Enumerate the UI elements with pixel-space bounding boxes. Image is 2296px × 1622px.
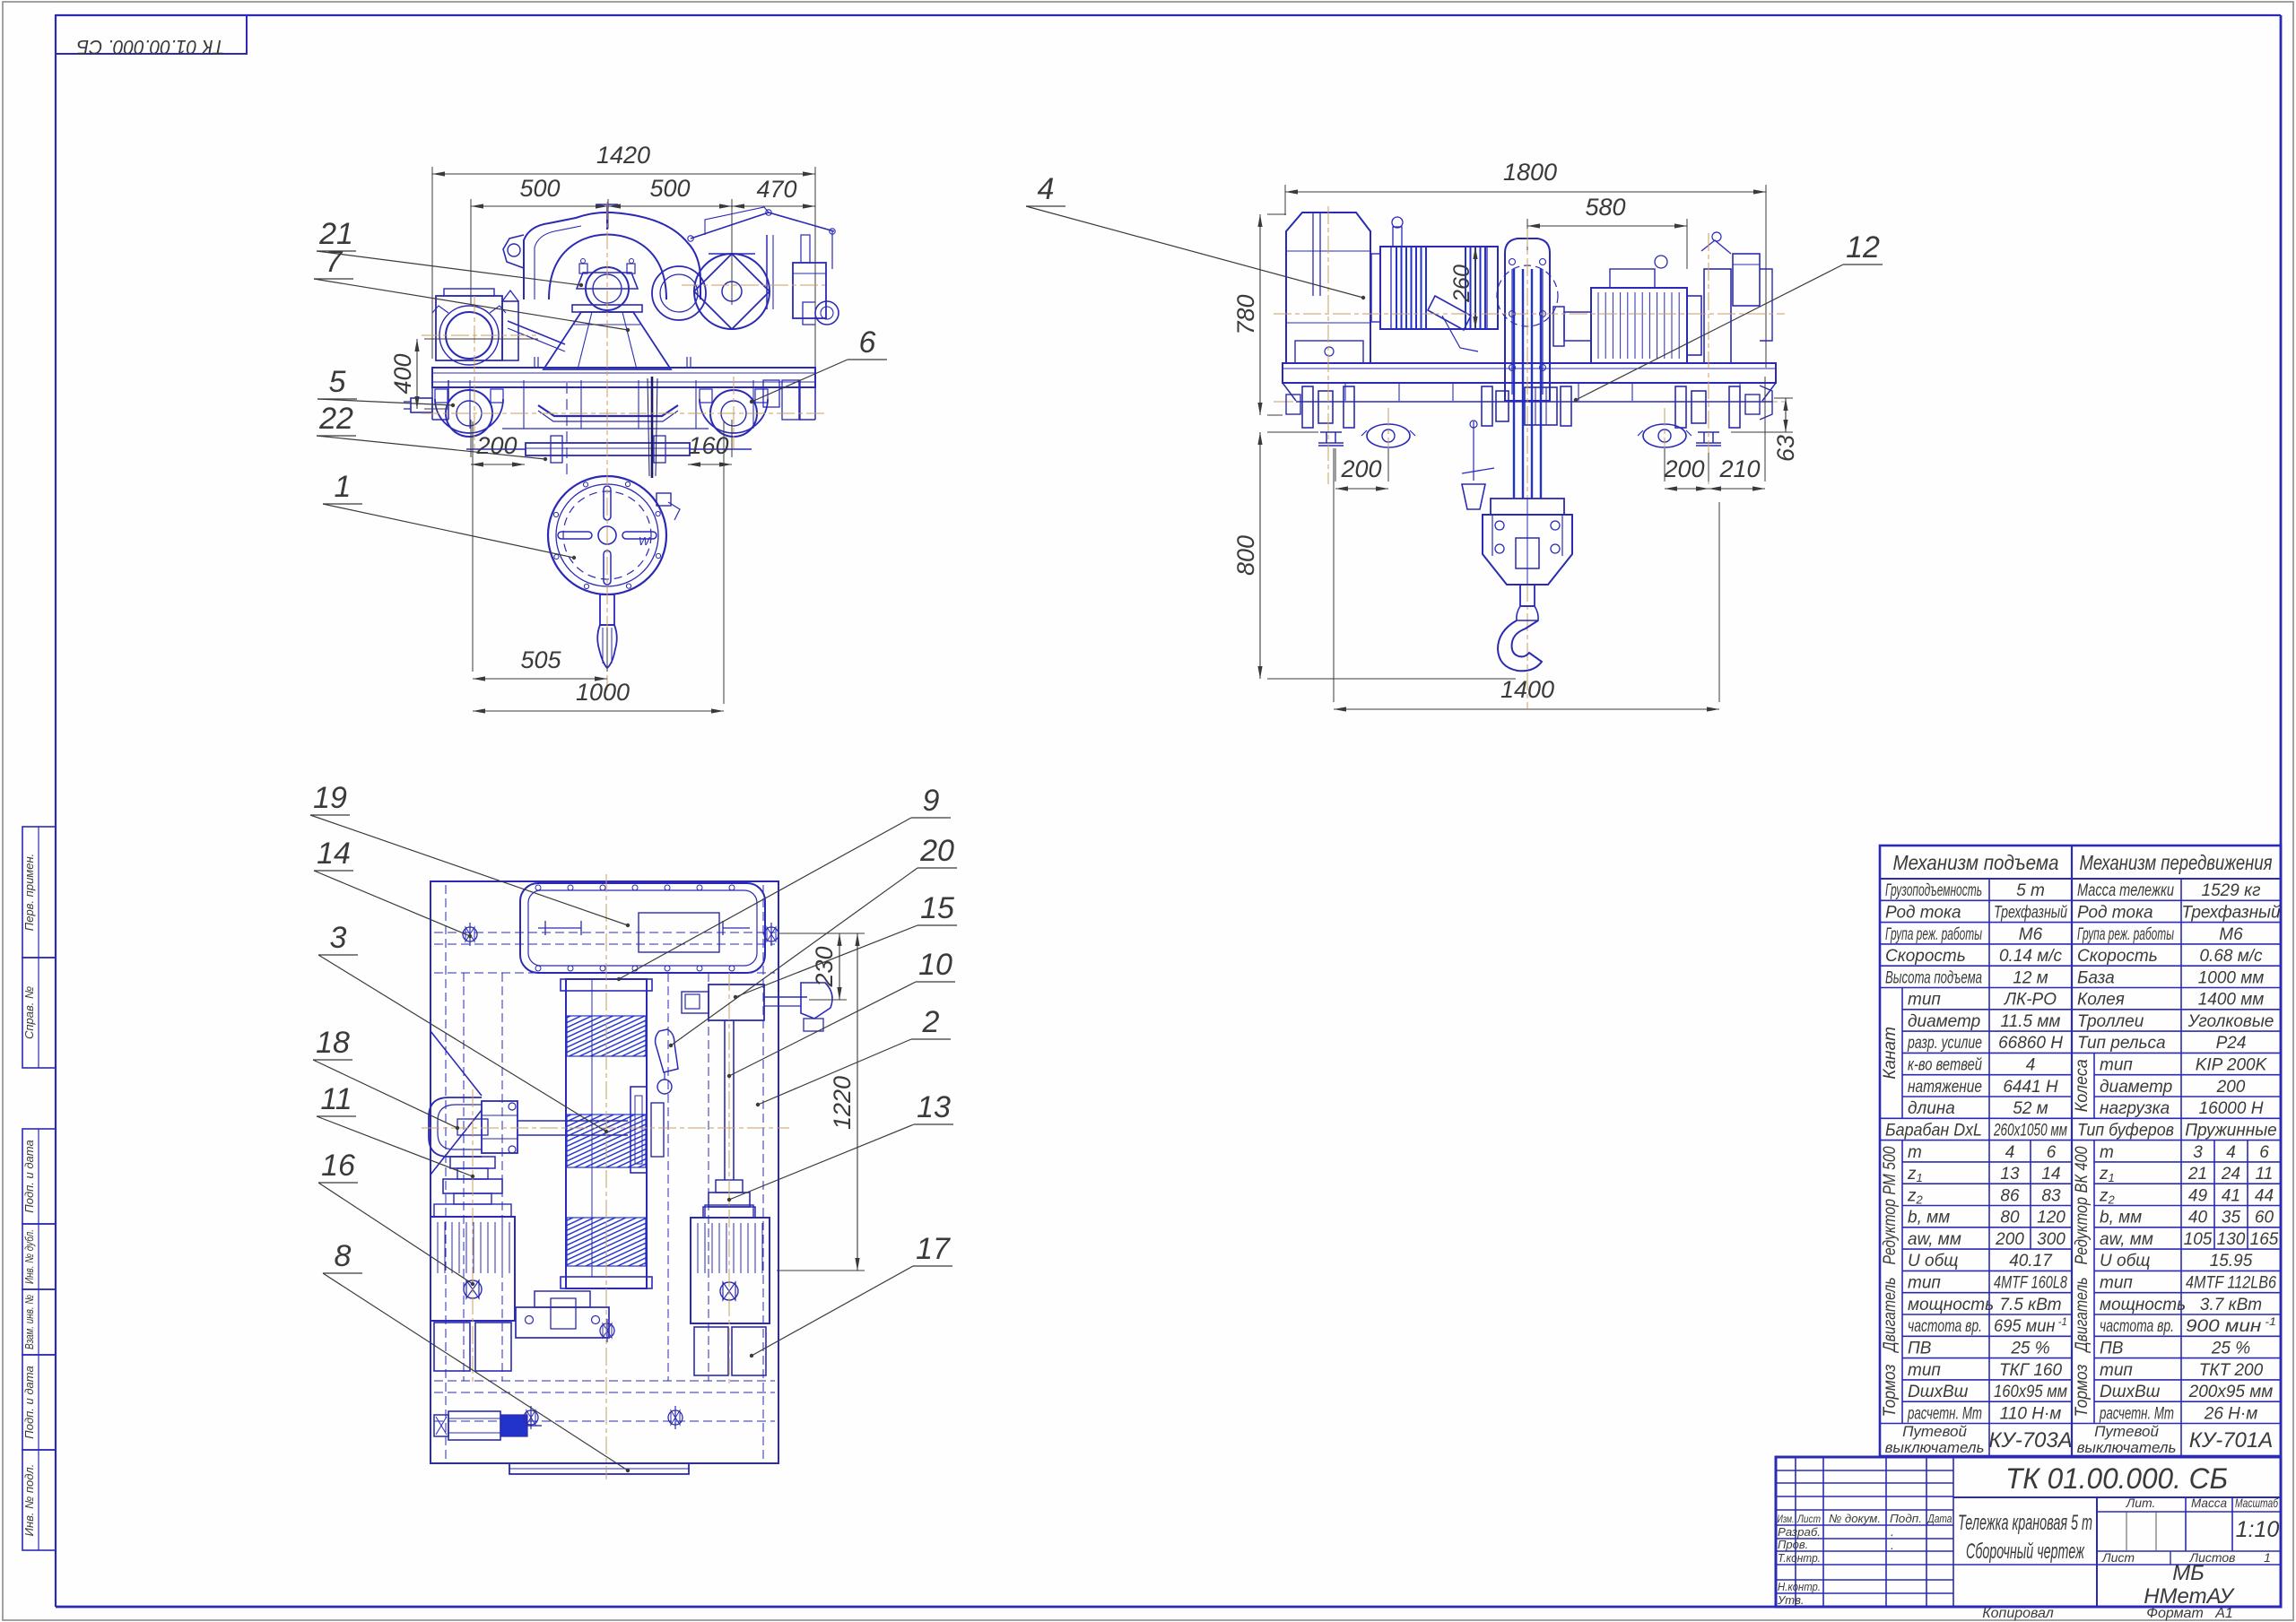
svg-text:КУ-701А: КУ-701А (2189, 1428, 2274, 1453)
svg-text:диаметр: диаметр (2100, 1078, 2172, 1097)
svg-text:тип: тип (1908, 1361, 1941, 1380)
svg-text:9: 9 (923, 784, 940, 818)
svg-text:aw, мм: aw, мм (2100, 1230, 2153, 1249)
svg-text:230: 230 (811, 946, 838, 987)
svg-text:470: 470 (756, 176, 796, 203)
svg-text:Двигатель: Двигатель (2073, 1278, 2092, 1354)
svg-text:14: 14 (2041, 1165, 2060, 1184)
svg-text:1420: 1420 (596, 142, 650, 169)
svg-text:6: 6 (859, 325, 876, 360)
svg-text:МБ: МБ (2172, 1561, 2205, 1585)
svg-text:66860 Н: 66860 Н (1998, 1034, 2063, 1053)
svg-text:6: 6 (2047, 1143, 2057, 1162)
svg-text:мощность: мощность (2100, 1296, 2186, 1314)
svg-text:0.68 м/с: 0.68 м/с (2199, 947, 2263, 966)
svg-text:4MTF 160L8: 4MTF 160L8 (1994, 1274, 2067, 1293)
svg-text:тип: тип (2100, 1274, 2133, 1293)
svg-text:505: 505 (520, 646, 561, 673)
svg-text:3.7 кВт: 3.7 кВт (2200, 1296, 2262, 1314)
svg-text:Тележка крановая 5 т: Тележка крановая 5 т (1958, 1511, 2092, 1535)
svg-text:выключатель: выключатель (2077, 1439, 2177, 1456)
svg-text:ПВ: ПВ (1908, 1339, 1932, 1357)
svg-text:21: 21 (2187, 1165, 2207, 1184)
svg-text:Трехфазный: Трехфазный (1994, 903, 2067, 922)
svg-text:Скорость: Скорость (1885, 947, 1966, 966)
svg-text:1400: 1400 (1500, 676, 1554, 703)
svg-text:ТКГ 160: ТКГ 160 (1999, 1361, 2063, 1380)
svg-text:ТКТ 200: ТКТ 200 (2199, 1361, 2264, 1380)
svg-text:Инв. № дубл.: Инв. № дубл. (22, 1229, 36, 1284)
svg-text:210: 210 (1718, 455, 1760, 482)
svg-text:3: 3 (2193, 1143, 2203, 1162)
svg-text:m: m (2100, 1143, 2114, 1162)
svg-text:24: 24 (2221, 1165, 2240, 1184)
svg-text:Перв. примен.: Перв. примен. (22, 854, 36, 931)
svg-text:Подп.: Подп. (1890, 1512, 1922, 1525)
svg-text:83: 83 (2041, 1186, 2061, 1205)
svg-text:KIP 200K: KIP 200K (2196, 1056, 2268, 1075)
svg-text:Путевой: Путевой (1902, 1423, 1967, 1440)
svg-text:длина: длина (1908, 1099, 1955, 1118)
svg-text:17: 17 (916, 1232, 951, 1266)
svg-text:580: 580 (1585, 194, 1625, 221)
svg-text:4MTF 112LB6: 4MTF 112LB6 (2186, 1274, 2276, 1293)
svg-text:40: 40 (2188, 1209, 2208, 1227)
svg-text:Лист: Лист (2101, 1550, 2135, 1565)
svg-text:12: 12 (1846, 230, 1880, 265)
svg-text:Путевой: Путевой (2094, 1423, 2159, 1440)
svg-text:780: 780 (1232, 294, 1259, 334)
svg-text:1400 мм: 1400 мм (2198, 991, 2265, 1010)
svg-text:Дата: Дата (1926, 1512, 1952, 1525)
svg-text:ТК 01.00.000. СБ: ТК 01.00.000. СБ (2005, 1462, 2228, 1495)
svg-text:800: 800 (1232, 535, 1259, 576)
svg-text:105: 105 (2184, 1230, 2213, 1249)
svg-text:Утв.: Утв. (1777, 1593, 1805, 1607)
svg-text:15.95: 15.95 (2210, 1252, 2253, 1271)
svg-text:Сборочный чертеж: Сборочный чертеж (1966, 1540, 2085, 1564)
svg-text:КУ-703А: КУ-703А (1988, 1428, 2073, 1453)
svg-text:130: 130 (2217, 1230, 2246, 1249)
svg-text:ЛК-РО: ЛК-РО (2003, 991, 2057, 1010)
svg-text:Тормоз: Тормоз (2073, 1364, 2092, 1417)
svg-text:Тип буферов: Тип буферов (2077, 1121, 2174, 1140)
svg-text:Канат: Канат (1881, 1027, 1900, 1080)
svg-text:тип: тип (2100, 1056, 2133, 1075)
svg-text:частота вр.: частота вр. (1908, 1317, 1982, 1336)
svg-text:52 м: 52 м (2013, 1099, 2048, 1118)
svg-text:49: 49 (2188, 1186, 2208, 1205)
svg-text:нагрузка: нагрузка (2100, 1099, 2170, 1118)
svg-text:тип: тип (2100, 1361, 2133, 1380)
svg-text:расчетн. Мт: расчетн. Мт (1907, 1404, 1982, 1423)
svg-text:14: 14 (317, 837, 351, 871)
svg-text:расчетн. Мт: расчетн. Мт (2099, 1404, 2174, 1423)
svg-text:Тормоз: Тормоз (1881, 1364, 1900, 1417)
svg-text:Т.контр.: Т.контр. (1778, 1551, 1821, 1565)
svg-text:натяжение: натяжение (1908, 1078, 1982, 1097)
svg-text:120: 120 (2037, 1209, 2066, 1227)
svg-text:5 т: 5 т (2016, 881, 2045, 900)
svg-text:19: 19 (313, 781, 347, 815)
svg-text:Высота подъема: Высота подъема (1885, 968, 1982, 987)
svg-text:1:10: 1:10 (2236, 1517, 2280, 1542)
svg-text:13: 13 (917, 1090, 951, 1124)
svg-text:1000: 1000 (576, 679, 630, 706)
svg-text:.: . (1891, 1538, 1894, 1552)
svg-text:Механизм подъема: Механизм подъема (1893, 851, 2059, 874)
svg-text:5: 5 (329, 365, 346, 399)
svg-text:500: 500 (519, 175, 560, 202)
svg-text:25 %: 25 % (2010, 1339, 2049, 1357)
svg-text:13: 13 (2000, 1165, 2020, 1184)
svg-text:Р24: Р24 (2216, 1034, 2247, 1053)
svg-text:25 %: 25 % (2211, 1339, 2250, 1357)
svg-text:выключатель: выключатель (1885, 1439, 1985, 1456)
svg-text:частота вр.: частота вр. (2100, 1317, 2174, 1336)
svg-text:4: 4 (1038, 172, 1055, 206)
svg-text:1000 мм: 1000 мм (2198, 968, 2265, 987)
svg-text:Подп. и дата: Подп. и дата (22, 1140, 36, 1212)
svg-text:к-во ветвей: к-во ветвей (1908, 1056, 1982, 1075)
svg-text:60: 60 (2255, 1209, 2274, 1227)
svg-text:Инв. № подл.: Инв. № подл. (22, 1464, 36, 1537)
svg-text:Н.контр.: Н.контр. (1778, 1580, 1821, 1593)
svg-text:300: 300 (2037, 1230, 2066, 1249)
svg-text:m: m (1908, 1143, 1922, 1162)
svg-text:3: 3 (330, 921, 347, 955)
svg-text:DшхВш: DшхВш (2100, 1383, 2161, 1401)
svg-text:Справ. №: Справ. № (22, 986, 36, 1039)
svg-text:16000 Н: 16000 Н (2199, 1099, 2264, 1118)
svg-text:1529 кг: 1529 кг (2202, 881, 2261, 900)
svg-text:b, мм: b, мм (2100, 1209, 2142, 1227)
svg-text:Тип рельса: Тип рельса (2077, 1034, 2166, 1053)
svg-text:Подп. и дата: Подп. и дата (22, 1366, 36, 1438)
svg-text:Пружинные: Пружинные (2185, 1121, 2277, 1140)
svg-text:41: 41 (2222, 1186, 2240, 1205)
svg-text:DшхВш: DшхВш (1908, 1383, 1969, 1401)
svg-text:40.17: 40.17 (2009, 1252, 2053, 1271)
svg-text:7: 7 (326, 245, 344, 279)
svg-text:ТК 01.00.000. СБ: ТК 01.00.000. СБ (77, 36, 225, 58)
svg-text:Троллеи: Троллеи (2077, 1012, 2144, 1031)
svg-text:диаметр: диаметр (1908, 1012, 1980, 1031)
svg-text:разр. усилие: разр. усилие (1907, 1034, 1982, 1053)
svg-text:Скорость: Скорость (2077, 947, 2158, 966)
svg-text:М6: М6 (2019, 925, 2043, 944)
svg-text:Колеса: Колеса (2073, 1059, 2092, 1112)
svg-text:Род тока: Род тока (2077, 903, 2153, 922)
svg-text:Барабан DxL: Барабан DxL (1885, 1121, 1982, 1140)
svg-text:W: W (639, 534, 651, 548)
svg-text:Колея: Колея (2077, 991, 2125, 1010)
svg-text:63: 63 (1772, 435, 1799, 462)
svg-text:М6: М6 (2219, 925, 2243, 944)
svg-text:Механизм передвижения: Механизм передвижения (2080, 851, 2273, 874)
svg-text:4: 4 (2005, 1143, 2015, 1162)
svg-text:26 Н·м: 26 Н·м (2204, 1404, 2258, 1423)
svg-text:6441 Н: 6441 Н (2003, 1078, 2058, 1097)
svg-text:15: 15 (920, 891, 954, 925)
svg-text:.: . (1891, 1524, 1894, 1539)
svg-text:80: 80 (2000, 1209, 2020, 1227)
svg-text:ПВ: ПВ (2100, 1339, 2124, 1357)
svg-text:20: 20 (919, 834, 954, 868)
svg-text:400: 400 (389, 353, 416, 394)
svg-text:11: 11 (2256, 1165, 2274, 1184)
svg-text:18: 18 (316, 1026, 350, 1060)
svg-text:Трехфазный: Трехфазный (2181, 903, 2281, 922)
svg-text:500: 500 (649, 175, 690, 202)
svg-text:Двигатель: Двигатель (1881, 1278, 1900, 1354)
svg-text:b, мм: b, мм (1908, 1209, 1950, 1227)
svg-text:Взам. инв. №: Взам. инв. № (22, 1295, 36, 1349)
svg-text:Формат: Формат (2146, 1606, 2204, 1621)
svg-text:260: 260 (1449, 265, 1474, 303)
svg-text:260х1050 мм: 260х1050 мм (1993, 1121, 2067, 1140)
svg-text:7.5 кВт: 7.5 кВт (1999, 1296, 2061, 1314)
svg-text:U общ: U общ (1908, 1252, 1958, 1271)
svg-text:200: 200 (1995, 1230, 2024, 1249)
svg-text:Група реж. работы: Група реж. работы (1885, 925, 1982, 944)
svg-text:44: 44 (2255, 1186, 2274, 1205)
svg-text:Пров.: Пров. (1778, 1538, 1808, 1551)
svg-text:160х95 мм: 160х95 мм (1994, 1383, 2067, 1401)
svg-text:200: 200 (1340, 455, 1381, 482)
svg-text:Род тока: Род тока (1885, 903, 1961, 922)
svg-text:Грузоподъемность: Грузоподъемность (1885, 881, 1982, 900)
svg-text:8: 8 (335, 1239, 352, 1273)
svg-text:Копировал: Копировал (1982, 1606, 2054, 1621)
svg-text:Масса тележки: Масса тележки (2077, 881, 2174, 900)
svg-text:НМетАУ: НМетАУ (2144, 1584, 2235, 1609)
svg-text:База: База (2077, 968, 2115, 987)
svg-text:aw, мм: aw, мм (1908, 1230, 1961, 1249)
svg-text:Редуктор ВК 400: Редуктор ВК 400 (2073, 1146, 2092, 1264)
svg-text:86: 86 (2000, 1186, 2020, 1205)
svg-text:мощность: мощность (1908, 1296, 1994, 1314)
svg-text:Разраб.: Разраб. (1778, 1525, 1821, 1539)
svg-text:Редуктор РМ 500: Редуктор РМ 500 (1881, 1146, 1900, 1264)
svg-text:1: 1 (335, 470, 352, 504)
svg-text:Група реж. работы: Група реж. работы (2077, 925, 2174, 944)
svg-text:Уголковые: Уголковые (2187, 1012, 2274, 1031)
svg-text:№ докум.: № докум. (1829, 1512, 1881, 1525)
svg-text:10: 10 (918, 948, 952, 982)
svg-text:4: 4 (2026, 1056, 2036, 1075)
svg-text:0.14 м/с: 0.14 м/с (1999, 947, 2063, 966)
svg-text:U общ: U общ (2100, 1252, 2150, 1271)
svg-text:Лит.: Лит. (2126, 1496, 2156, 1510)
svg-text:165: 165 (2250, 1230, 2279, 1249)
svg-text:16: 16 (321, 1149, 355, 1183)
svg-text:Изм.: Изм. (1778, 1513, 1795, 1525)
svg-text:тип: тип (1908, 991, 1941, 1010)
svg-text:Масса: Масса (2191, 1496, 2227, 1510)
svg-text:1: 1 (2264, 1550, 2271, 1565)
svg-text:2: 2 (922, 1005, 940, 1039)
svg-text:11.5 мм: 11.5 мм (2001, 1012, 2061, 1031)
svg-text:200: 200 (1663, 455, 1704, 482)
svg-text:Масштаб: Масштаб (2235, 1496, 2279, 1510)
svg-text:1220: 1220 (829, 1076, 856, 1130)
svg-text:6: 6 (2259, 1143, 2269, 1162)
svg-text:200х95 мм: 200х95 мм (2188, 1383, 2274, 1401)
svg-text:1800: 1800 (1503, 159, 1557, 186)
svg-text:35: 35 (2222, 1209, 2241, 1227)
svg-text:22: 22 (318, 402, 353, 436)
svg-text:11: 11 (320, 1082, 352, 1116)
svg-text:А1: А1 (2214, 1606, 2233, 1621)
svg-text:12 м: 12 м (2013, 968, 2048, 987)
svg-text:4: 4 (2226, 1143, 2236, 1162)
svg-text:200: 200 (2216, 1078, 2246, 1097)
svg-text:Лист: Лист (1796, 1513, 1821, 1525)
svg-text:тип: тип (1908, 1274, 1941, 1293)
svg-text:160: 160 (688, 432, 728, 459)
svg-text:110 Н·м: 110 Н·м (2000, 1404, 2062, 1423)
